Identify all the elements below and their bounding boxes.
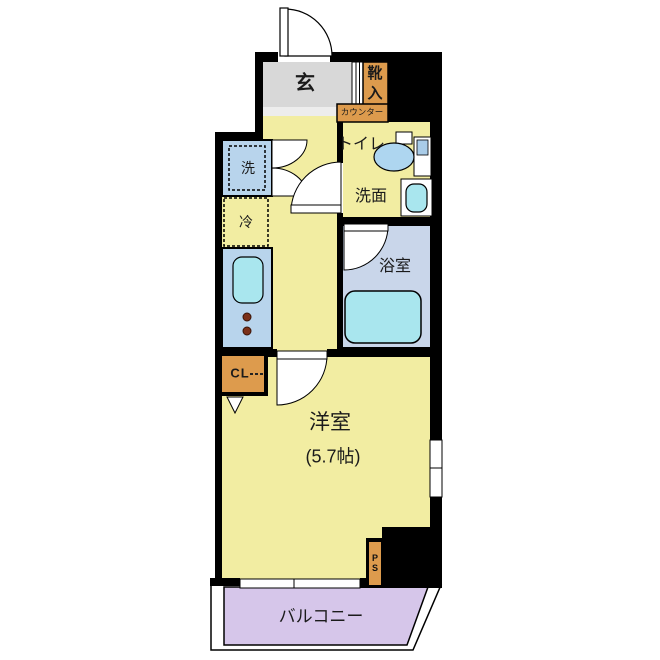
label-main-room-size: (5.7帖) (305, 447, 360, 468)
window-balcony (240, 579, 360, 588)
wall-bottom-left-stub (210, 578, 240, 586)
label-balcony: バルコニー (279, 607, 364, 627)
hallway-floor-upper (263, 116, 337, 140)
bathtub-icon (345, 291, 421, 343)
wall-genkan-left (255, 52, 263, 140)
entrance-door-arc (285, 9, 332, 56)
wall-step-left (215, 132, 263, 140)
washbasin-sink-icon (406, 184, 427, 212)
label-bathroom: 浴室 (379, 258, 411, 276)
label-main-room: 洋室 (309, 411, 351, 435)
floorplan-page: 玄 靴 入 カウンター トイレ 洗面 浴室 洗 冷 CL 洋室 (5.7帖) P… (0, 0, 660, 660)
label-washer: 洗 (241, 160, 255, 176)
entrance-door-leaf (280, 8, 288, 56)
wall-right-lower (430, 497, 442, 528)
wall-right-upper (430, 122, 442, 440)
label-toilet: トイレ (337, 136, 385, 154)
stove-burner-icon (243, 327, 251, 335)
floorplan-drawing (0, 0, 660, 660)
label-closet: CL (230, 367, 249, 382)
toilet-cistern-icon (396, 132, 412, 144)
label-fridge: 冷 (239, 214, 253, 230)
stove-burner-icon (243, 313, 251, 321)
shoe-box-louver (352, 62, 363, 106)
label-shoe-box: 靴 入 (367, 64, 382, 104)
toilet-tank-lid-icon (417, 140, 428, 155)
bathroom-door-leaf (344, 224, 388, 231)
label-genkan: 玄 (295, 73, 315, 96)
wall-bathroom-bottom (337, 347, 442, 357)
kitchen-sink-icon (233, 257, 263, 303)
wall-bathroom-left (337, 226, 343, 347)
label-pipe-space: P S (372, 553, 378, 573)
washroom-door-leaf (291, 205, 341, 213)
main-room-door-leaf (277, 351, 327, 359)
label-counter: カウンター (341, 108, 384, 118)
wall-void-top-right (388, 52, 442, 122)
wall-room-door-post-right (327, 349, 337, 357)
label-washroom: 洗面 (355, 188, 387, 206)
